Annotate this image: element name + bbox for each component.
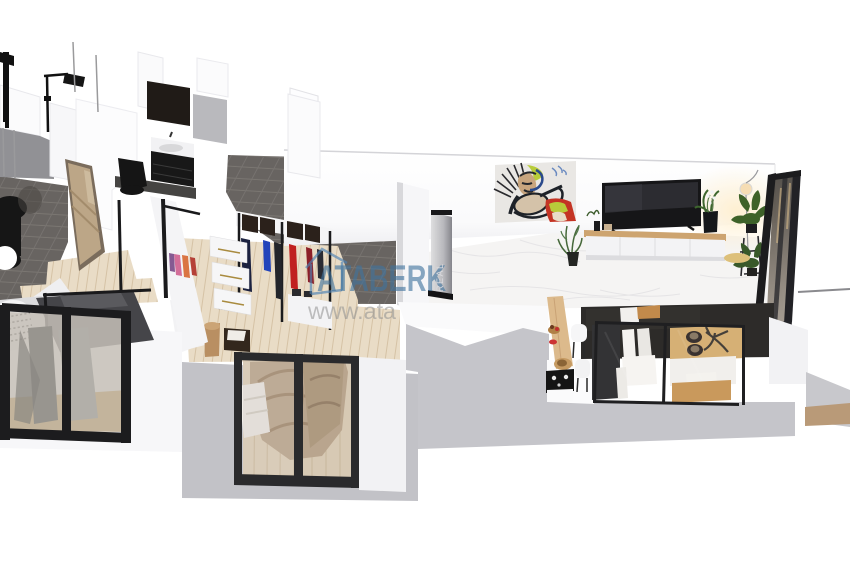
svg-text:www.ata: www.ata: [307, 298, 396, 324]
svg-text:REAL: REAL: [435, 262, 445, 292]
svg-text:ATABERK: ATABERK: [317, 258, 446, 299]
